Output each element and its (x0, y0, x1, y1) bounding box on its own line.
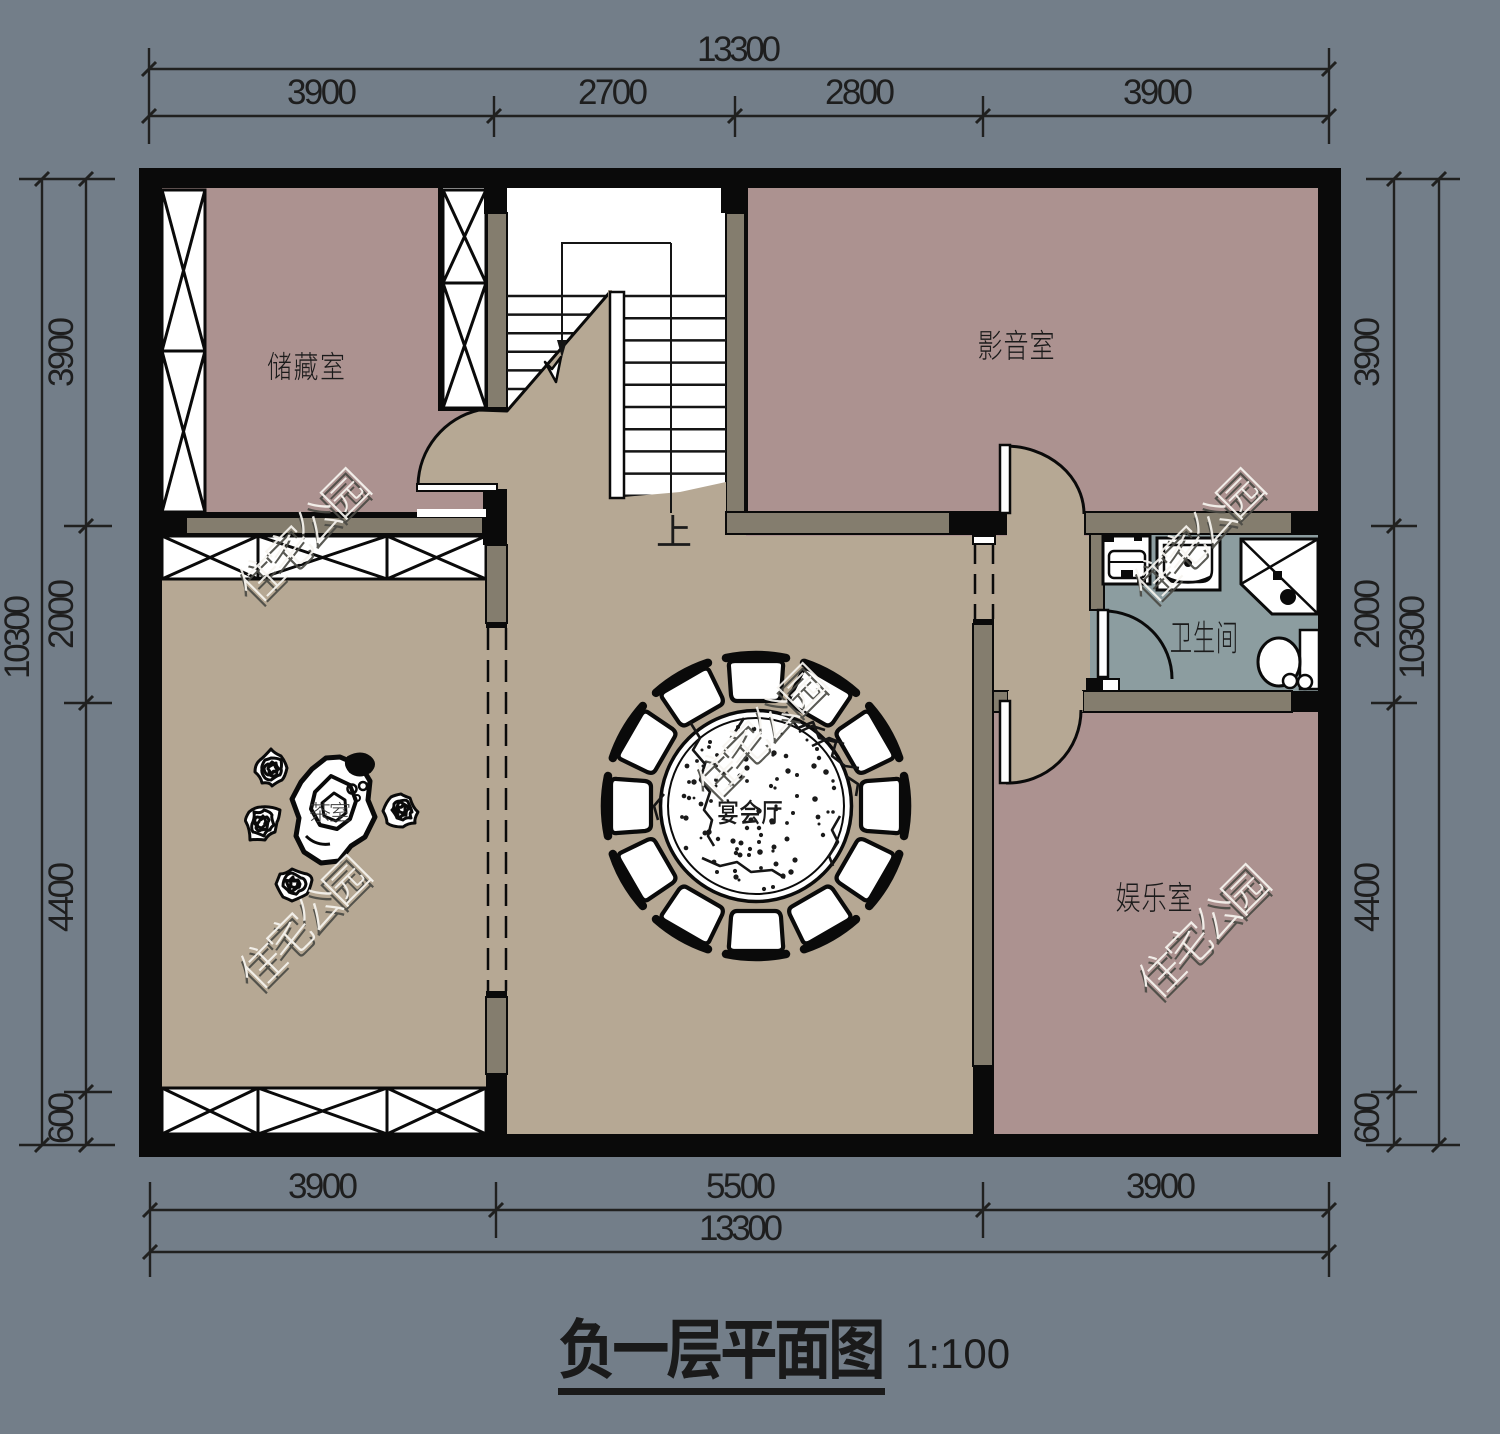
svg-text:3900: 3900 (1348, 317, 1387, 387)
svg-text:3900: 3900 (288, 1167, 358, 1206)
svg-text:4400: 4400 (1348, 862, 1387, 932)
svg-text:3900: 3900 (1126, 1167, 1196, 1206)
svg-text:1:100: 1:100 (905, 1330, 1010, 1377)
svg-text:4400: 4400 (42, 862, 81, 932)
svg-text:2000: 2000 (1348, 579, 1387, 649)
svg-text:3900: 3900 (1123, 73, 1193, 112)
svg-text:10300: 10300 (0, 595, 37, 679)
svg-text:2800: 2800 (825, 73, 895, 112)
svg-text:13300: 13300 (699, 1209, 783, 1248)
svg-text:3900: 3900 (287, 73, 357, 112)
svg-text:2700: 2700 (578, 73, 648, 112)
svg-text:600: 600 (1348, 1092, 1387, 1144)
svg-text:600: 600 (42, 1092, 81, 1144)
svg-text:13300: 13300 (697, 30, 781, 69)
svg-text:3900: 3900 (42, 317, 81, 387)
svg-text:5500: 5500 (706, 1167, 776, 1206)
svg-text:2000: 2000 (42, 579, 81, 649)
svg-text:10300: 10300 (1393, 595, 1432, 679)
